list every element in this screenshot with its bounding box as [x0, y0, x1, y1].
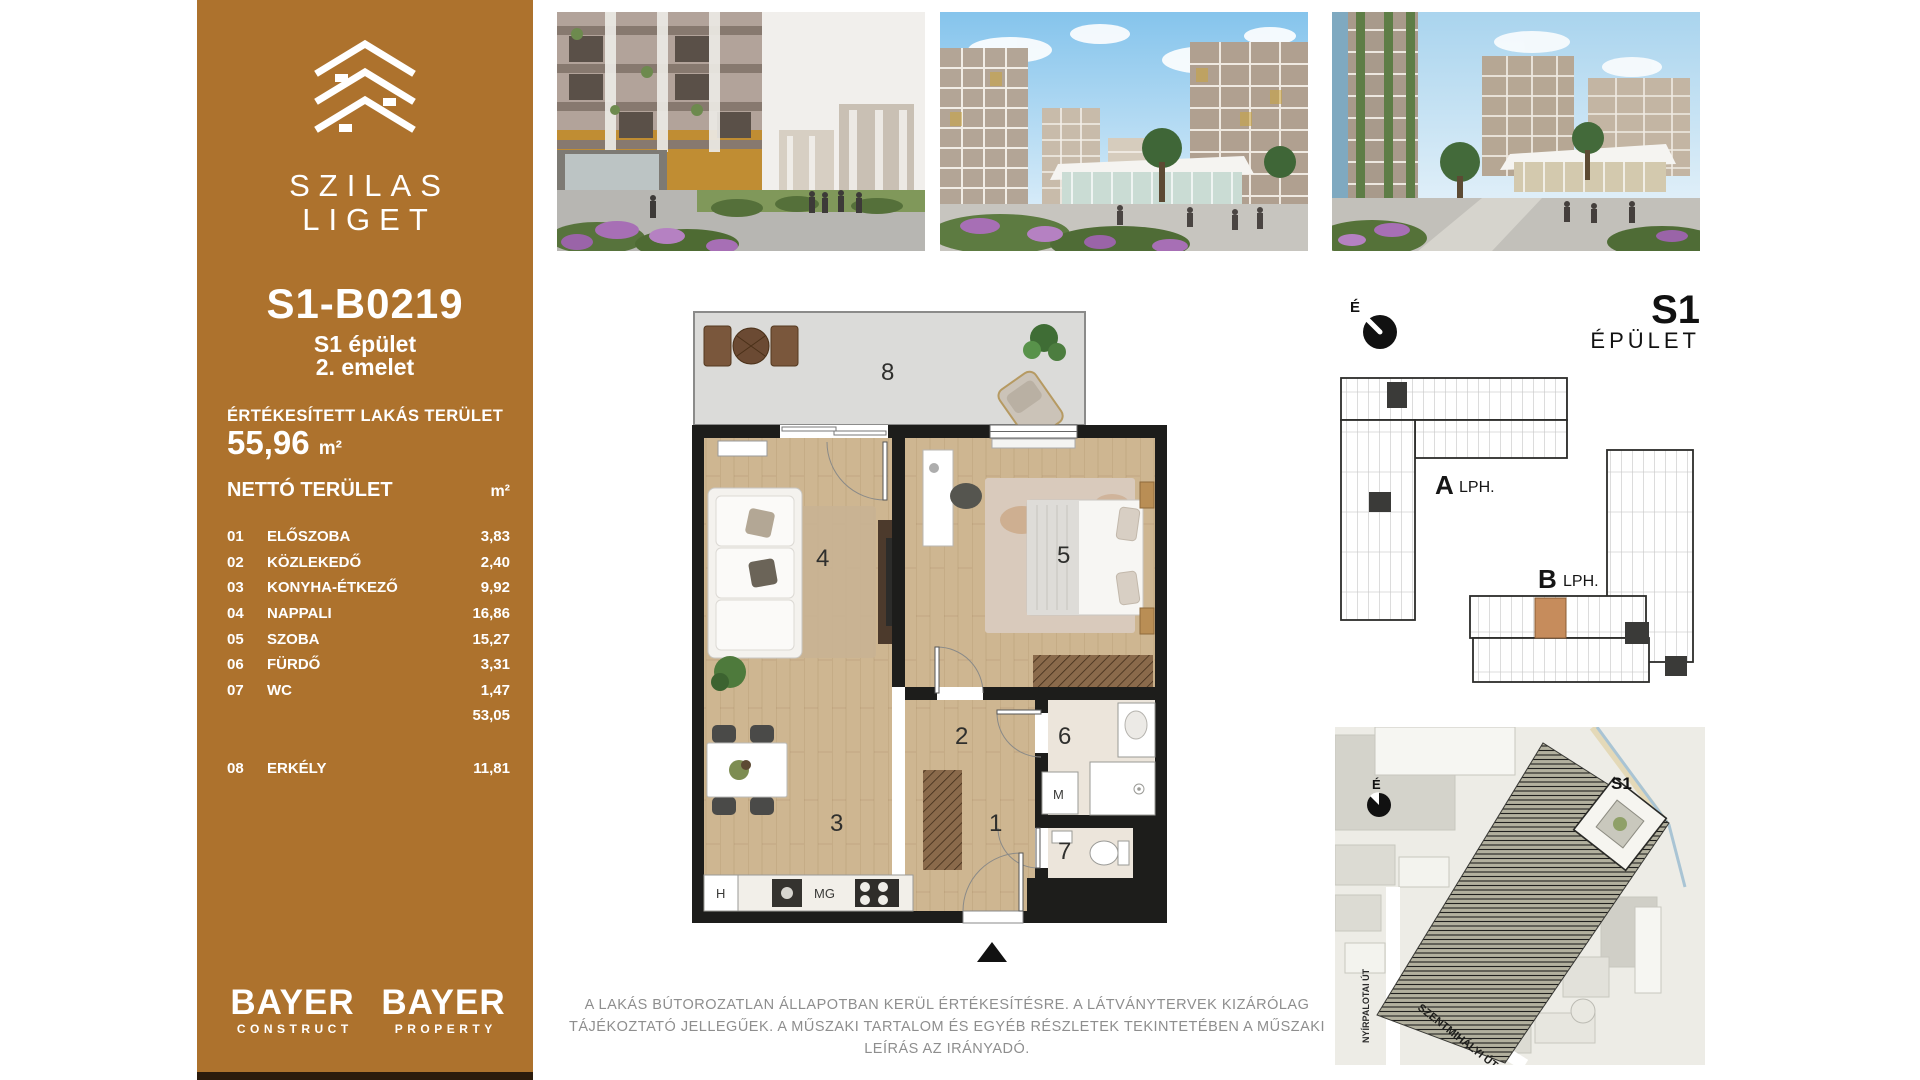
room-number: 02 [227, 554, 267, 571]
sidebar-bottom-bar [197, 1072, 533, 1080]
bayer-property-subline: PROPERTY [376, 1022, 511, 1036]
washer-label: M [1053, 787, 1064, 802]
kitchen-counter: H MG [704, 875, 913, 911]
nightstand [1140, 608, 1154, 634]
table-row: 04 NAPPALI 16,86 [227, 601, 510, 627]
room-number-4: 4 [816, 545, 829, 572]
sold-area-value: 55,96 m² [227, 424, 342, 462]
building-plan-compass: É [1344, 296, 1414, 356]
fridge-label: H [716, 886, 725, 901]
balcony-sliding-door [780, 425, 888, 438]
apartment-floor-plan: 8 [692, 310, 1167, 975]
room-name: ELŐSZOBA [267, 528, 481, 545]
room-area: 9,92 [481, 579, 510, 596]
net-area-header: NETTÓ TERÜLET m² [227, 479, 510, 502]
room-number: 07 [227, 682, 267, 699]
render-photo-masterplan [940, 12, 1308, 251]
room-name: SZOBA [267, 631, 472, 648]
room-name: NAPPALI [267, 605, 472, 622]
map-compass-label: É [1372, 777, 1381, 792]
room-number-2: 2 [955, 723, 968, 750]
szilas-liget-logo-icon [305, 36, 425, 154]
s1-marker-label: S1 [1611, 774, 1632, 793]
toilet [1090, 841, 1129, 865]
unit-code: S1-B0219 [197, 280, 533, 328]
building-key-plan: A LPH. B LPH. [1335, 372, 1707, 707]
building-plan-title: S1 ÉPÜLET [1480, 292, 1700, 354]
room-name: ERKÉLY [267, 760, 473, 777]
stove-label: MG [814, 886, 835, 901]
room-number: 01 [227, 528, 267, 545]
table-row: 05 SZOBA 15,27 [227, 626, 510, 652]
room-number-3: 3 [830, 810, 843, 837]
room-number-6: 6 [1058, 723, 1071, 750]
disclaimer-text: A LAKÁS BÚTOROZATLAN ÁLLAPOTBAN KERÜL ÉR… [552, 995, 1342, 1060]
balcony-room-8: 8 [694, 312, 1085, 443]
table-row: 06 FÜRDŐ 3,31 [227, 652, 510, 678]
radiator [718, 441, 767, 456]
brand-line-1: SZILAS [197, 168, 533, 204]
bedroom-wardrobe [1033, 655, 1153, 687]
sold-area-number: 55,96 [227, 424, 310, 461]
sofa [708, 488, 802, 658]
balcony-table-set [704, 326, 798, 366]
page: SZILAS LIGET S1-B0219 S1 épület 2. emele… [0, 0, 1920, 1080]
bed [1027, 500, 1143, 615]
table-row: 01 ELŐSZOBA 3,83 [227, 524, 510, 550]
bedroom-window [990, 425, 1077, 448]
render-photo-street [1332, 12, 1700, 251]
washing-machine: M [1042, 772, 1078, 814]
bayer-construct-wordmark: BAYER [225, 986, 360, 1020]
tv [886, 538, 892, 626]
highlighted-unit [1535, 598, 1566, 638]
room-number: 05 [227, 631, 267, 648]
stairwell-b-lph: LPH. [1563, 573, 1599, 590]
room-number-7: 7 [1058, 838, 1071, 865]
table-row: 07 WC 1,47 [227, 678, 510, 704]
room-name: FÜRDŐ [267, 656, 481, 673]
room-area: 16,86 [472, 605, 510, 622]
table-row-balcony: 08 ERKÉLY 11,81 [227, 756, 510, 782]
bayer-construct-logo: BAYER CONSTRUCT [225, 986, 360, 1036]
room-name: WC [267, 682, 481, 699]
desk-chair [950, 483, 982, 509]
room-name: KÖZLEKEDŐ [267, 554, 481, 571]
room-area: 3,31 [481, 656, 510, 673]
building-title-big: S1 [1480, 292, 1700, 328]
shower [1090, 762, 1155, 815]
building-title-small: ÉPÜLET [1480, 328, 1700, 354]
front-door-opening [963, 911, 1023, 923]
table-row: 03 KONYHA-ÉTKEZŐ 9,92 [227, 575, 510, 601]
stairwell-a-lph: LPH. [1459, 479, 1495, 496]
nightstand [1140, 482, 1154, 508]
table-spacer [227, 729, 510, 756]
floor-name: 2. emelet [197, 354, 533, 381]
site-map: S1 É NYÍRPALOTAI ÚT SZENTMIHÁLYI ÚT [1335, 727, 1705, 1070]
stairwell-a-letter: A [1435, 470, 1454, 500]
net-area-label: NETTÓ TERÜLET [227, 479, 393, 502]
room-number: 03 [227, 579, 267, 596]
table-row: 02 KÖZLEKEDŐ 2,40 [227, 550, 510, 576]
table-subtotal-row: 53,05 [227, 703, 510, 729]
bayer-construct-subline: CONSTRUCT [225, 1022, 360, 1036]
room-number-1: 1 [989, 810, 1002, 837]
room-number: 04 [227, 605, 267, 622]
sidebar: SZILAS LIGET S1-B0219 S1 épület 2. emele… [197, 0, 533, 1072]
room-number-8: 8 [881, 359, 894, 386]
room-area: 1,47 [481, 682, 510, 699]
room-area: 2,40 [481, 554, 510, 571]
room-area-table: 01 ELŐSZOBA 3,83 02 KÖZLEKEDŐ 2,40 03 KO… [227, 524, 510, 781]
foreground-building [557, 12, 762, 194]
hall-wardrobe [923, 770, 962, 870]
brand-line-2: LIGET [197, 202, 533, 238]
room-number-5: 5 [1057, 542, 1070, 569]
room-area: 15,27 [472, 631, 510, 648]
bayer-property-logo: BAYER PROPERTY [376, 986, 511, 1036]
entrance-arrow [977, 942, 1007, 962]
bayer-property-wordmark: BAYER [376, 986, 511, 1020]
room-name: KONYHA-ÉTKEZŐ [267, 579, 481, 596]
sold-area-unit: m² [319, 438, 342, 459]
wing-a [1341, 378, 1567, 620]
render-photo-courtyard [557, 12, 925, 251]
room-area: 3,83 [481, 528, 510, 545]
subtotal-value: 53,05 [472, 707, 510, 724]
wing-b [1470, 450, 1693, 682]
left-tower [1332, 12, 1418, 208]
net-area-unit: m² [490, 483, 510, 501]
room-number: 08 [227, 760, 267, 777]
room-area: 11,81 [473, 760, 510, 777]
compass-north-label: É [1350, 299, 1360, 316]
developer-logos: BAYER CONSTRUCT BAYER PROPERTY [225, 986, 511, 1036]
stairwell-b-letter: B [1538, 564, 1557, 594]
room-number: 06 [227, 656, 267, 673]
street-label-vertical: NYÍRPALOTAI ÚT [1360, 968, 1371, 1043]
